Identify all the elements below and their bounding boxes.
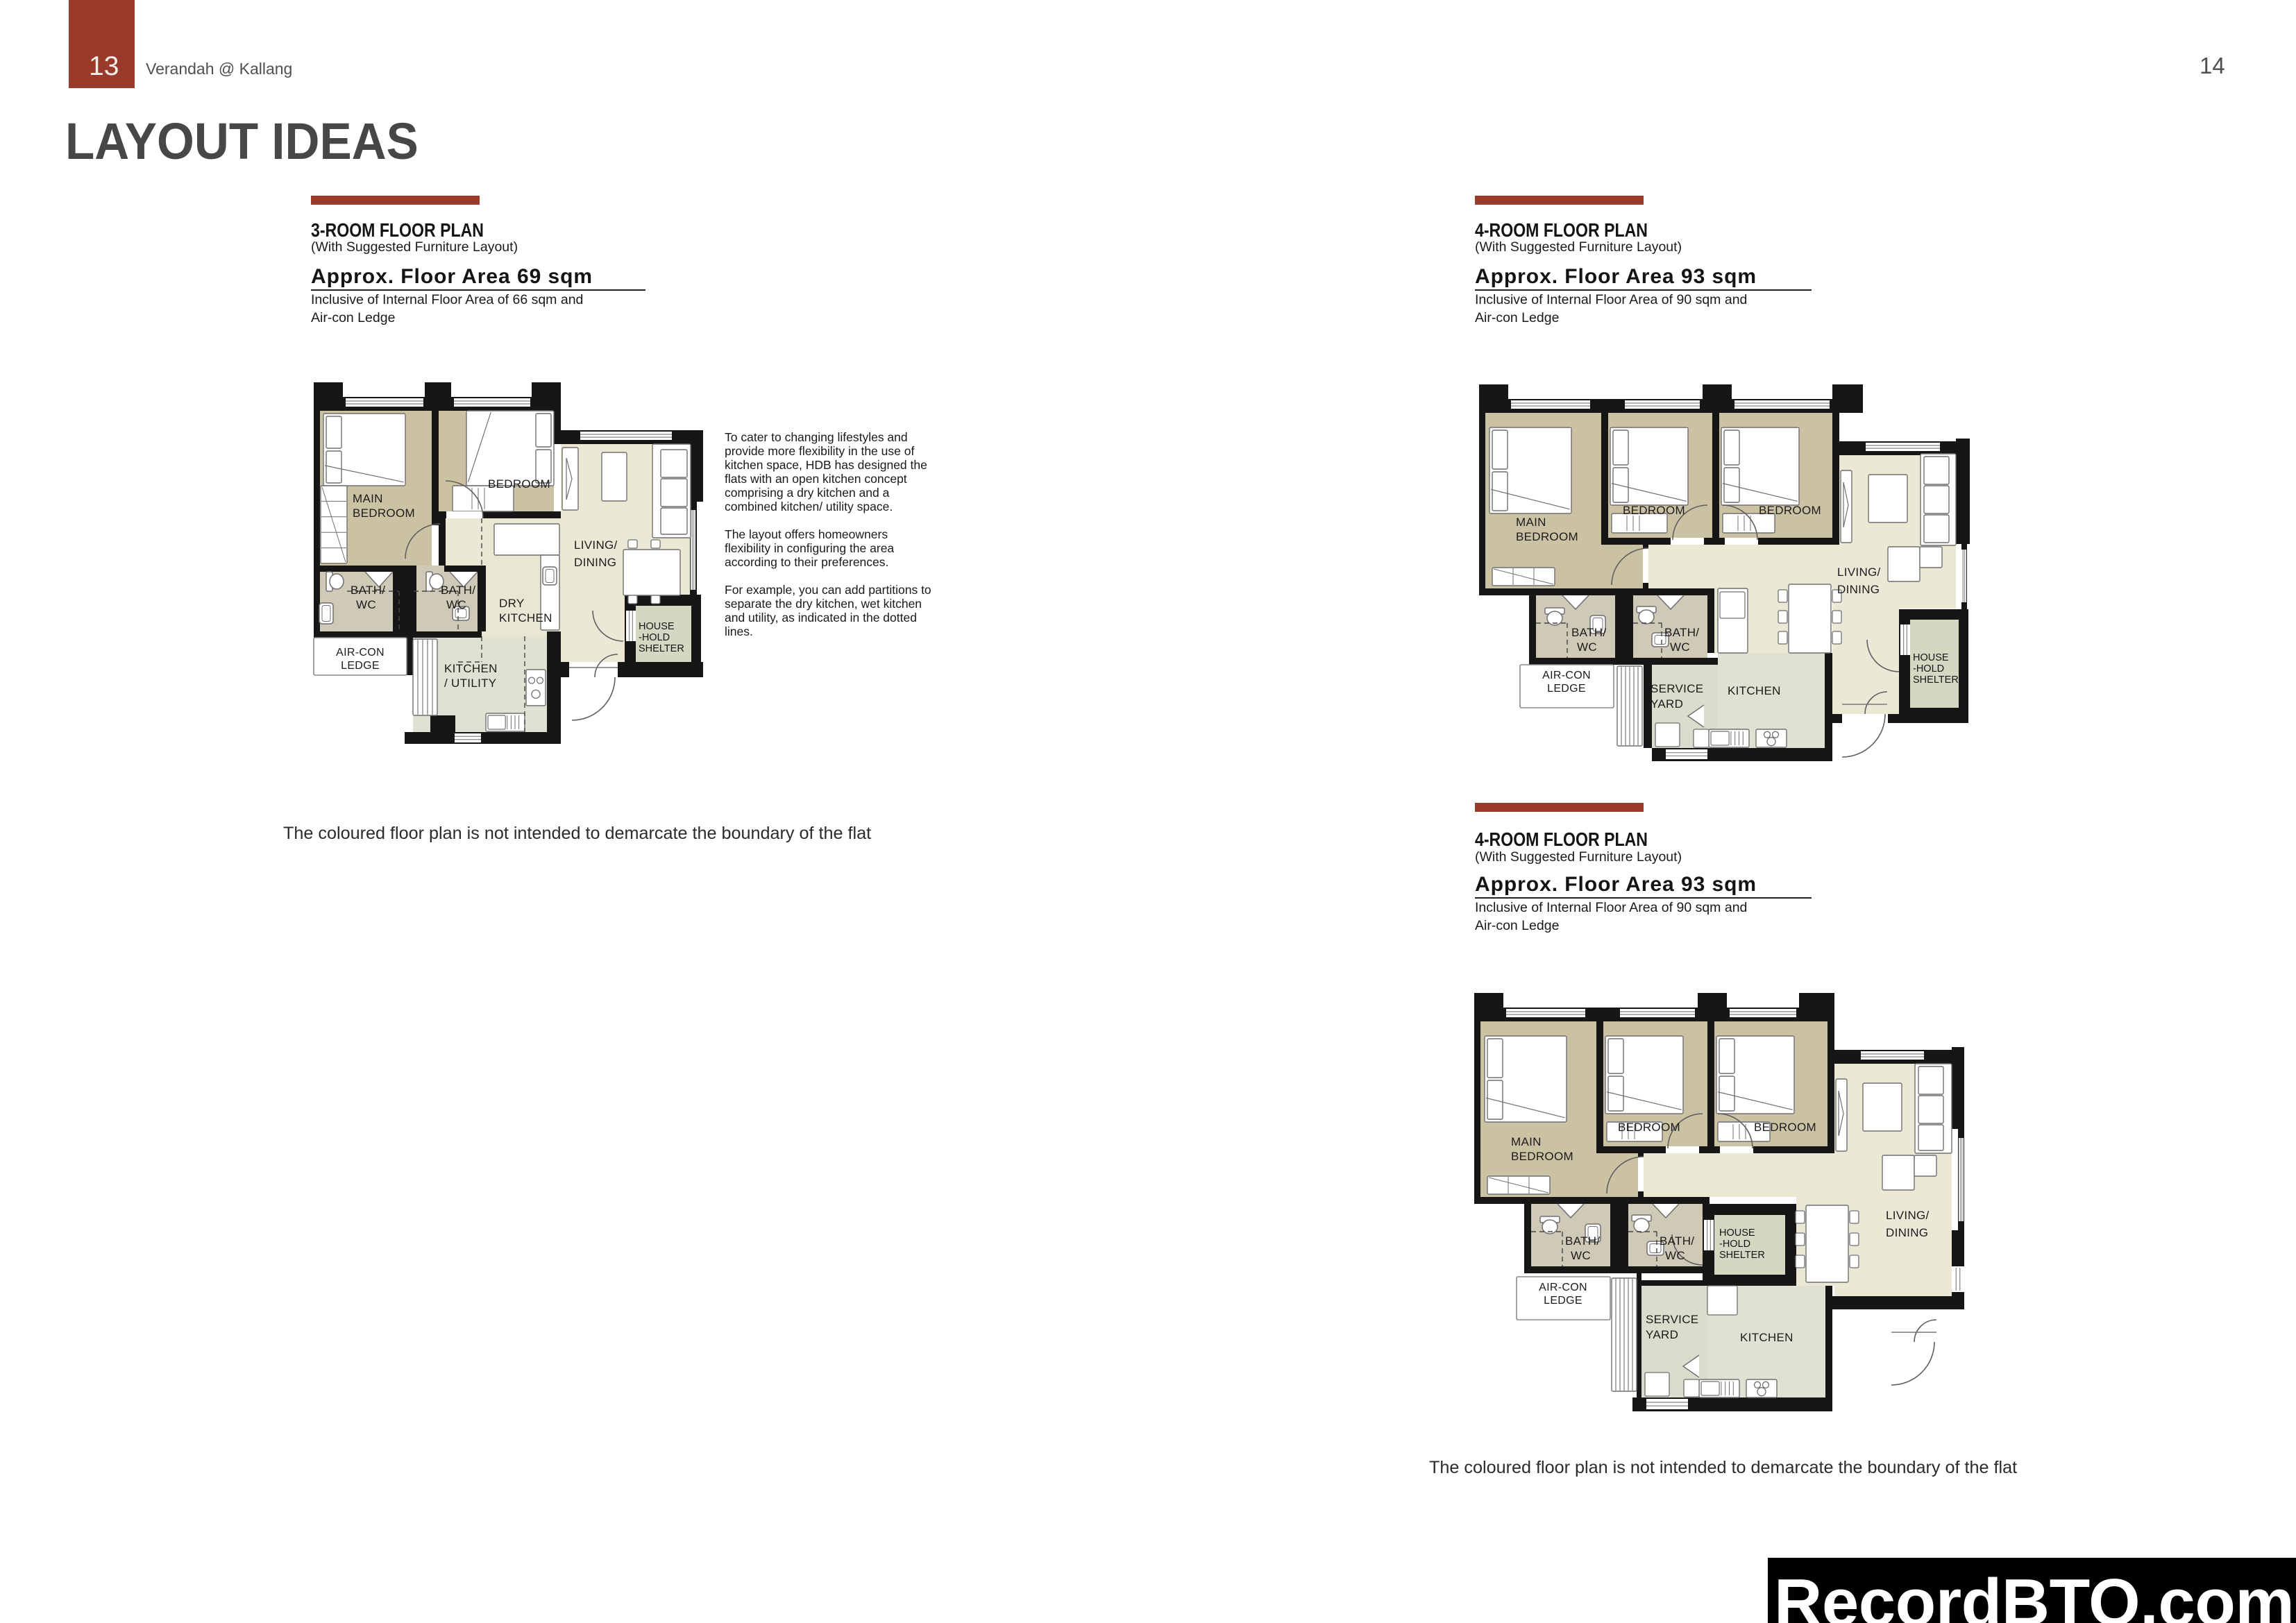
svg-text:YARD: YARD — [1651, 697, 1683, 711]
svg-text:HOUSE: HOUSE — [1719, 1227, 1755, 1239]
svg-text:MAIN: MAIN — [1516, 516, 1546, 529]
svg-text:BEDROOM: BEDROOM — [1623, 504, 1685, 517]
svg-text:LIVING/: LIVING/ — [574, 538, 618, 552]
svg-text:WC: WC — [1670, 640, 1690, 654]
svg-text:BATH/: BATH/ — [441, 584, 475, 597]
svg-text:AIR-CON: AIR-CON — [336, 647, 385, 658]
svg-text:BATH/: BATH/ — [351, 584, 385, 597]
svg-text:BATH/: BATH/ — [1571, 626, 1606, 639]
svg-text:MAIN: MAIN — [1511, 1135, 1542, 1148]
svg-text:LEDGE: LEDGE — [1544, 1295, 1582, 1307]
svg-text:-HOLD: -HOLD — [1719, 1239, 1750, 1250]
svg-text:AIR-CON: AIR-CON — [1542, 670, 1591, 681]
svg-text:KITCHEN: KITCHEN — [444, 662, 498, 675]
svg-text:LIVING/: LIVING/ — [1886, 1209, 1930, 1222]
svg-text:BATH/: BATH/ — [1664, 626, 1699, 639]
svg-text:-HOLD: -HOLD — [639, 632, 670, 643]
svg-text:-HOLD: -HOLD — [1913, 663, 1944, 674]
svg-text:LIVING/: LIVING/ — [1837, 566, 1881, 579]
svg-text:BEDROOM: BEDROOM — [1754, 1121, 1816, 1134]
svg-text:BEDROOM: BEDROOM — [1759, 504, 1821, 517]
svg-text:HOUSE: HOUSE — [1913, 652, 1949, 663]
svg-text:DINING: DINING — [1837, 583, 1880, 596]
svg-text:BEDROOM: BEDROOM — [1511, 1150, 1573, 1163]
svg-text:SHELTER: SHELTER — [639, 643, 684, 654]
svg-text:KITCHEN: KITCHEN — [1728, 684, 1781, 697]
svg-text:SERVICE: SERVICE — [1646, 1313, 1698, 1326]
svg-text:LEDGE: LEDGE — [341, 660, 380, 672]
svg-text:SHELTER: SHELTER — [1719, 1250, 1765, 1261]
svg-text:MAIN: MAIN — [353, 492, 383, 505]
svg-text:AIR-CON: AIR-CON — [1539, 1282, 1587, 1293]
svg-text:LEDGE: LEDGE — [1547, 683, 1586, 695]
svg-text:HOUSE: HOUSE — [639, 621, 675, 632]
svg-text:WC: WC — [1577, 640, 1597, 654]
svg-text:BEDROOM: BEDROOM — [488, 477, 550, 491]
svg-text:BEDROOM: BEDROOM — [1516, 530, 1578, 543]
svg-text:KITCHEN: KITCHEN — [499, 611, 552, 624]
svg-text:BATH/: BATH/ — [1660, 1234, 1694, 1248]
svg-text:BEDROOM: BEDROOM — [353, 507, 415, 520]
svg-text:DINING: DINING — [1886, 1226, 1928, 1239]
svg-text:/ UTILITY: / UTILITY — [444, 677, 496, 690]
svg-text:DINING: DINING — [574, 556, 616, 569]
svg-text:SHELTER: SHELTER — [1913, 674, 1959, 686]
svg-text:KITCHEN: KITCHEN — [1740, 1331, 1793, 1344]
svg-text:WC: WC — [356, 598, 376, 611]
svg-text:SERVICE: SERVICE — [1651, 682, 1703, 695]
svg-text:WC: WC — [446, 598, 466, 611]
svg-text:WC: WC — [1571, 1249, 1591, 1262]
svg-text:DRY: DRY — [499, 597, 525, 610]
svg-text:BATH/: BATH/ — [1565, 1234, 1600, 1248]
svg-text:BEDROOM: BEDROOM — [1618, 1121, 1680, 1134]
svg-text:YARD: YARD — [1646, 1328, 1678, 1341]
svg-text:WC: WC — [1665, 1249, 1685, 1262]
